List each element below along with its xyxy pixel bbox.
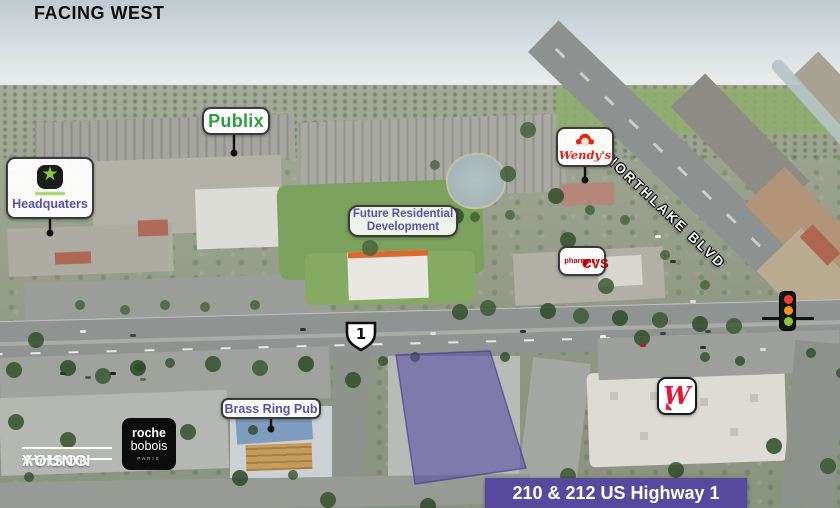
brass-ring-pub-label: Brass Ring Pub [224,402,317,416]
callout-publix: Publix [202,107,270,135]
headquarters-logo-wordmark [35,192,65,195]
roche-line3: PARIS [137,456,160,461]
callout-brass-ring-pub: Brass Ring Pub [221,398,321,419]
headquarters-logo-icon: ★ [35,165,65,191]
cvs-pharmacy-label: pharmacy [564,257,599,265]
traffic-light-arm-left [762,317,780,320]
callout-cvs: ♥CVS pharmacy [558,246,606,276]
callout-pointer-wendys [582,167,589,184]
wendys-wordmark: Wendy's [559,148,611,162]
callout-pointer-headquarters [47,219,54,237]
aerial-marketing-photo: 1 FACING WEST Publix ★ Headquaters Wendy… [0,0,840,508]
avison-young-logo: AVISON YOUNG [22,447,112,460]
callout-future-residential: Future Residential Development [348,205,458,237]
us1-route-shield-icon: 1 [347,323,375,350]
future-residential-line2: Development [367,221,439,234]
callout-pointer-brass-ring [268,419,275,433]
subject-parcel-highlight [396,351,526,484]
future-residential-line1: Future Residential [353,208,453,221]
wendys-girl-icon [575,133,595,148]
callout-headquarters: ★ Headquaters [6,157,94,219]
callout-pointer-publix [231,135,238,157]
svg-text:1: 1 [356,325,366,343]
property-address-banner: 210 & 212 US Highway 1 [485,478,747,508]
yellow-light [784,306,793,315]
traffic-light-arm-right [795,317,814,320]
roche-line2: bobois [131,440,168,453]
walgreens-tail [666,403,674,411]
red-light [784,295,793,304]
star-icon: ★ [35,163,65,186]
headquarters-label: Headquaters [12,197,88,211]
roche-bobois-logo: roche bobois PARIS [122,418,176,470]
callout-wendys: Wendy's [556,127,614,167]
green-light [784,317,793,326]
publix-wordmark: Publix [208,111,264,132]
avison-line2: YOUNG [22,453,89,472]
walgreens-logo-icon: W [657,377,697,415]
view-direction-label: FACING WEST [34,3,165,24]
traffic-light-icon [779,291,796,331]
